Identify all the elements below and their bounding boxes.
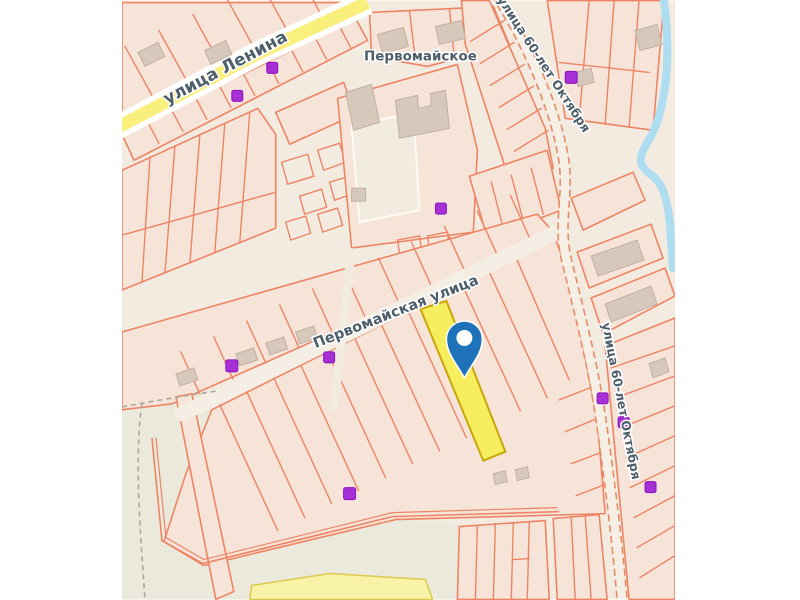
map-viewport[interactable]: улица Ленина Первомайское улица 60-лет О… bbox=[122, 0, 675, 600]
place-label-pervomayskoye: Первомайское bbox=[364, 48, 477, 64]
map-canvas: улица Ленина Первомайское улица 60-лет О… bbox=[122, 0, 675, 600]
screenshot-root: улица Ленина Первомайское улица 60-лет О… bbox=[0, 0, 800, 600]
